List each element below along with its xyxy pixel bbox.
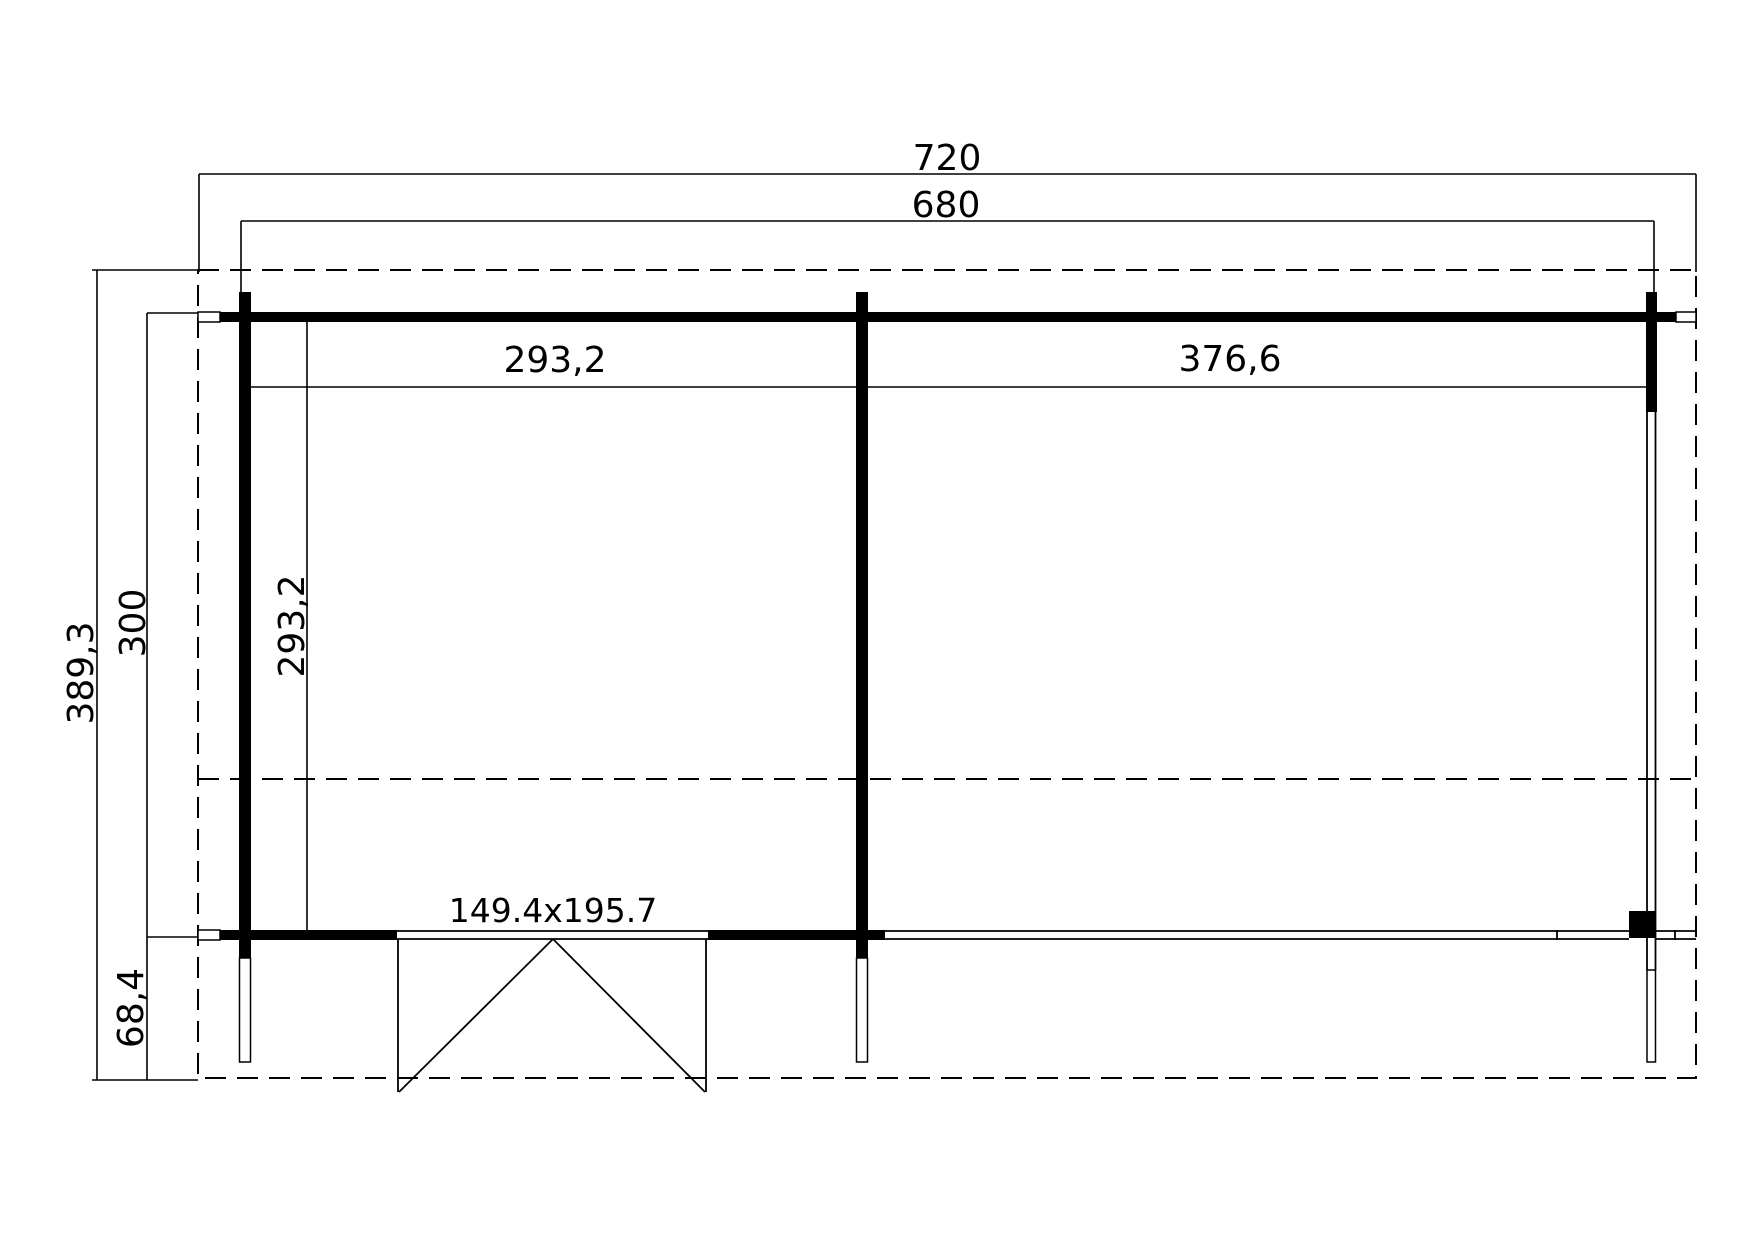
label-main-depth: 300 [113,589,154,658]
floor-plan-drawing: 720 680 293,2 376,6 389,3 300 68,4 293,2… [0,0,1754,1240]
top-wall-cap-right [1676,312,1696,322]
top-wall-cap-left [198,312,220,322]
left-wall [239,292,251,958]
right-post-extension [1647,970,1656,1062]
left-post-extension [240,958,251,1062]
label-outer-wall-width: 680 [912,185,981,226]
door-leaf-left [399,939,553,1092]
label-overhang-depth: 68,4 [111,968,152,1048]
label-door-dimensions: 149.4x195.7 [449,891,657,930]
middle-post-extension [857,958,868,1062]
door-leaf-right [553,939,705,1092]
corner-post-block [1629,911,1655,938]
bottom-wall-cap-left [198,930,220,940]
label-left-room-width: 293,2 [503,340,606,381]
label-left-room-depth: 293,2 [272,574,313,677]
label-right-room-width: 376,6 [1178,339,1281,380]
roof-overhang-outline [198,270,1696,1078]
top-wall [220,312,1676,322]
right-wall-post [1646,292,1657,412]
partition-wall [856,292,868,958]
label-total-depth: 389,3 [61,621,102,724]
floor-plan-canvas: 720 680 293,2 376,6 389,3 300 68,4 293,2… [0,0,1754,1240]
label-total-width: 720 [913,138,982,179]
